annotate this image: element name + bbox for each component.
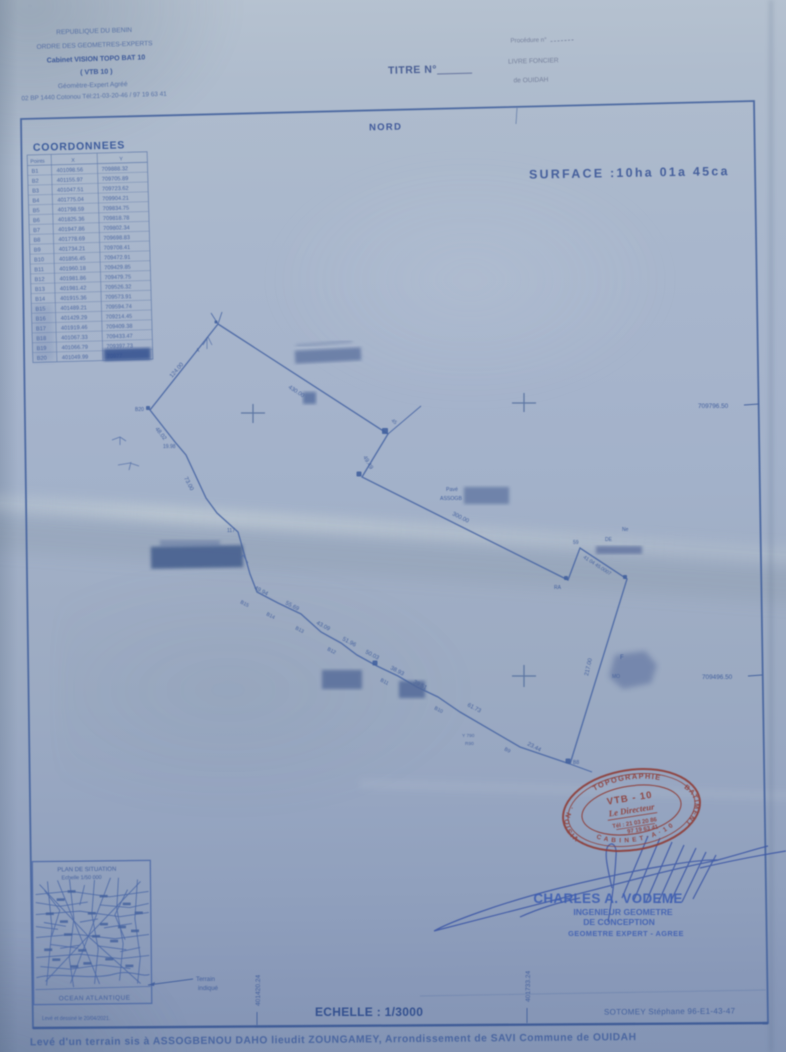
svg-text:F: F <box>620 655 624 661</box>
svg-text:Cabinet VISION TOPO BAT 10: Cabinet VISION TOPO BAT 10 <box>47 54 146 64</box>
svg-text:B4: B4 <box>32 198 39 204</box>
svg-text:Levé d'un terrain sis à ASSOG: Levé d'un terrain sis à ASSOGBENOU DAHO … <box>30 1032 637 1048</box>
svg-text:117: 117 <box>227 528 235 534</box>
svg-text:R90: R90 <box>465 741 474 747</box>
svg-text:709904.21: 709904.21 <box>102 196 129 203</box>
svg-text:401420.24: 401420.24 <box>255 974 262 1006</box>
svg-text:401429.29: 401429.29 <box>61 315 88 322</box>
svg-text:55.69: 55.69 <box>284 600 300 612</box>
svg-text:Procédure n°: Procédure n° <box>510 37 547 45</box>
svg-text:401915.36: 401915.36 <box>60 295 87 302</box>
svg-text:indiqué: indiqué <box>198 985 219 992</box>
svg-text:709698.83: 709698.83 <box>103 235 130 242</box>
svg-text:RA: RA <box>554 585 562 591</box>
svg-text:709796.50: 709796.50 <box>698 403 729 410</box>
svg-text:GEOMETRE EXPERT - AGREE: GEOMETRE EXPERT - AGREE <box>568 929 684 938</box>
svg-text:DE: DE <box>605 537 613 543</box>
svg-text:B12: B12 <box>35 277 45 283</box>
svg-text:401067.33: 401067.33 <box>61 335 88 342</box>
svg-text:401098.56: 401098.56 <box>57 167 84 174</box>
svg-text:B5: B5 <box>33 208 40 214</box>
svg-text:DE CONCEPTION: DE CONCEPTION <box>583 917 655 927</box>
svg-text:709496.50: 709496.50 <box>702 674 733 681</box>
svg-text:PLAN DE SITUATION: PLAN DE SITUATION <box>57 867 116 874</box>
svg-text:401856.45: 401856.45 <box>59 256 86 263</box>
svg-text:CHARLES A. VODEME: CHARLES A. VODEME <box>533 891 682 906</box>
svg-text:401733.24: 401733.24 <box>525 970 532 1002</box>
svg-text:INGENIEUR GEOMETRE: INGENIEUR GEOMETRE <box>573 907 673 917</box>
svg-text:B10: B10 <box>433 705 444 715</box>
svg-text:B14: B14 <box>35 297 45 303</box>
svg-text:51.96: 51.96 <box>341 636 357 648</box>
svg-text:709708.41: 709708.41 <box>104 245 131 252</box>
svg-text:709723.62: 709723.62 <box>102 186 129 193</box>
svg-text:709818.78: 709818.78 <box>103 215 130 222</box>
svg-text:NORD: NORD <box>369 122 402 134</box>
svg-text:MO: MO <box>612 674 620 680</box>
svg-text:401155.97: 401155.97 <box>57 177 83 184</box>
svg-text:45: 45 <box>390 418 398 426</box>
svg-text:401049.99: 401049.99 <box>62 355 89 362</box>
svg-text:709214.45: 709214.45 <box>106 314 133 321</box>
svg-text:B12: B12 <box>326 646 337 656</box>
svg-text:401778.69: 401778.69 <box>58 236 85 243</box>
svg-text:49.49: 49.49 <box>361 455 373 471</box>
svg-text:401047.51: 401047.51 <box>57 187 84 194</box>
svg-text:401775.04: 401775.04 <box>57 197 84 204</box>
svg-text:B9: B9 <box>34 247 41 253</box>
svg-text:709573.91: 709573.91 <box>105 294 132 301</box>
svg-text:A: A <box>196 348 200 354</box>
svg-text:( VTB 10 ): ( VTB 10 ) <box>80 68 113 76</box>
svg-text:SOTOMEY Stéphane 96-E1-43-47: SOTOMEY Stéphane 96-E1-43-47 <box>604 1007 736 1017</box>
svg-text:Echelle 1/50 000: Echelle 1/50 000 <box>61 875 101 881</box>
svg-text:Points: Points <box>30 159 45 165</box>
svg-text:Pavé: Pavé <box>446 487 458 493</box>
svg-text:B7: B7 <box>33 228 40 234</box>
svg-text:401734.21: 401734.21 <box>59 246 86 253</box>
svg-text:401489.21: 401489.21 <box>60 305 87 312</box>
svg-text:73.00: 73.00 <box>182 476 194 492</box>
svg-text:OCEAN ATLANTIQUE: OCEAN ATLANTIQUE <box>59 995 131 1003</box>
svg-text:B11: B11 <box>34 267 44 273</box>
svg-text:ORDRE DES GEOMETRES-EXPERTS: ORDRE DES GEOMETRES-EXPERTS <box>36 40 153 51</box>
svg-text:Géomètre-Expert Agréé: Géomètre-Expert Agréé <box>58 81 128 90</box>
svg-text:61.73: 61.73 <box>466 702 482 714</box>
svg-text:430.00: 430.00 <box>287 385 305 400</box>
svg-text:B1: B1 <box>32 169 39 175</box>
svg-text:SURFACE :10ha 01a 45ca: SURFACE :10ha 01a 45ca <box>529 164 730 182</box>
svg-text:43.09: 43.09 <box>315 620 331 632</box>
svg-text:B10: B10 <box>34 257 44 263</box>
svg-text:709802.34: 709802.34 <box>103 225 130 232</box>
svg-text:709479.75: 709479.75 <box>105 274 132 281</box>
svg-text:401981.86: 401981.86 <box>60 276 87 283</box>
svg-text:ECHELLE : 1/3000: ECHELLE : 1/3000 <box>315 1005 423 1019</box>
svg-text:ASSOGB: ASSOGB <box>440 496 462 502</box>
svg-text:709834.75: 709834.75 <box>103 206 130 213</box>
svg-text:B13: B13 <box>294 625 305 635</box>
svg-text:B9: B9 <box>503 746 511 754</box>
svg-text:B11: B11 <box>379 677 390 686</box>
svg-text:401960.18: 401960.18 <box>59 266 86 273</box>
svg-text:709429.85: 709429.85 <box>104 265 131 272</box>
svg-text:B14: B14 <box>265 611 276 621</box>
svg-text:59: 59 <box>573 540 579 546</box>
svg-text:TITRE N°: TITRE N° <box>388 64 437 77</box>
svg-text:B6: B6 <box>33 218 40 224</box>
svg-text:709594.74: 709594.74 <box>105 304 132 311</box>
svg-text:Levé et dessiné le 20/04/2021: Levé et dessiné le 20/04/2021. <box>42 1016 110 1022</box>
svg-text:COORDONNEES: COORDONNEES <box>33 139 126 154</box>
svg-text:401798.59: 401798.59 <box>58 207 85 214</box>
svg-text:B8: B8 <box>573 760 579 766</box>
svg-text:X: X <box>71 158 75 164</box>
svg-text:19.98: 19.98 <box>163 444 176 450</box>
svg-text:401066.79: 401066.79 <box>61 345 88 352</box>
svg-text:02 BP 1440 Cotonou Tél:21-03: 02 BP 1440 Cotonou Tél:21-03-20-46 / 97 … <box>21 91 167 103</box>
svg-text:401825.36: 401825.36 <box>58 217 85 224</box>
svg-text:217.00: 217.00 <box>584 658 594 677</box>
svg-text:Y 790: Y 790 <box>462 733 475 739</box>
svg-text:B15: B15 <box>239 599 250 609</box>
svg-text:B20: B20 <box>135 407 144 413</box>
svg-text:709888.32: 709888.32 <box>102 166 129 173</box>
svg-text:709409.38: 709409.38 <box>106 324 133 331</box>
svg-text:709526.32: 709526.32 <box>105 284 132 291</box>
svg-text:de OUIDAH: de OUIDAH <box>513 77 548 85</box>
svg-text:Y: Y <box>119 156 123 162</box>
svg-text:401981.42: 401981.42 <box>60 286 87 293</box>
svg-text:LIVRE FONCIER: LIVRE FONCIER <box>508 57 559 65</box>
svg-text:B13: B13 <box>35 287 45 293</box>
svg-text:B3: B3 <box>32 188 39 194</box>
svg-text:B2: B2 <box>32 179 39 185</box>
svg-text:Ne: Ne <box>622 527 629 533</box>
svg-text:709705.89: 709705.89 <box>102 176 129 183</box>
svg-text:Terrain: Terrain <box>196 976 215 983</box>
svg-text:REPUBLIQUE DU BENIN: REPUBLIQUE DU BENIN <box>56 27 132 36</box>
svg-text:49.94: 49.94 <box>253 585 269 597</box>
svg-text:401919.46: 401919.46 <box>61 325 88 332</box>
svg-text:B8: B8 <box>33 238 40 244</box>
svg-text:401947.86: 401947.86 <box>58 227 85 234</box>
svg-text:709433.47: 709433.47 <box>106 334 133 341</box>
svg-text:709472.91: 709472.91 <box>104 255 131 262</box>
